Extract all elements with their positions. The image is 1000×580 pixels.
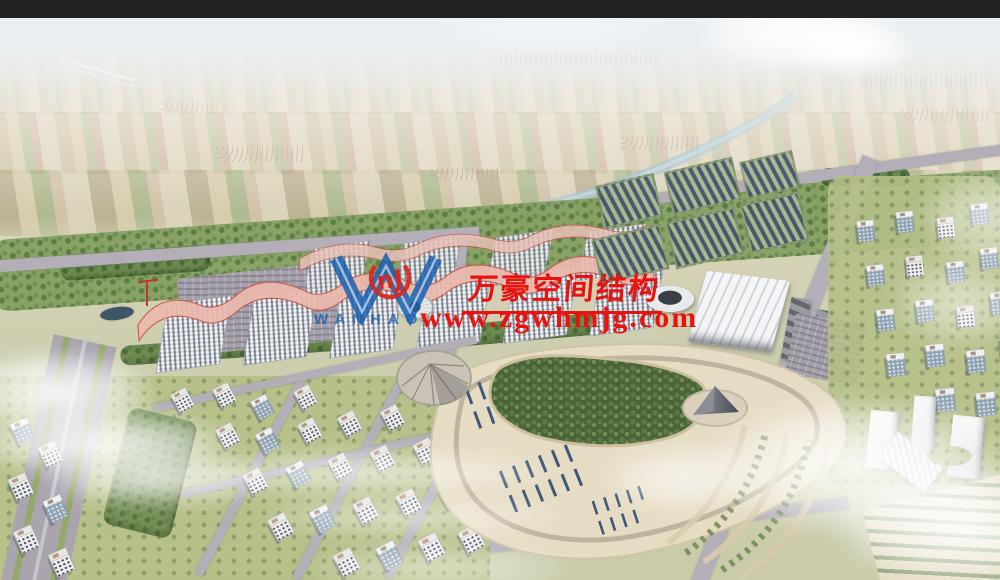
central-park-plaza [410,338,880,580]
solar-array-block [666,207,745,270]
solar-array-block [740,191,810,253]
oval-lawn [928,446,972,466]
watermark-website-url: www.zgwhmjg.com [420,301,698,335]
residential-district [0,373,480,580]
aerial-rendering-scene: nJ WANHAO 万豪空间结构 www.zgwhmjg.com [0,18,1000,580]
solar-array-block [595,173,663,229]
logo-mark-text: nJ [375,265,404,296]
